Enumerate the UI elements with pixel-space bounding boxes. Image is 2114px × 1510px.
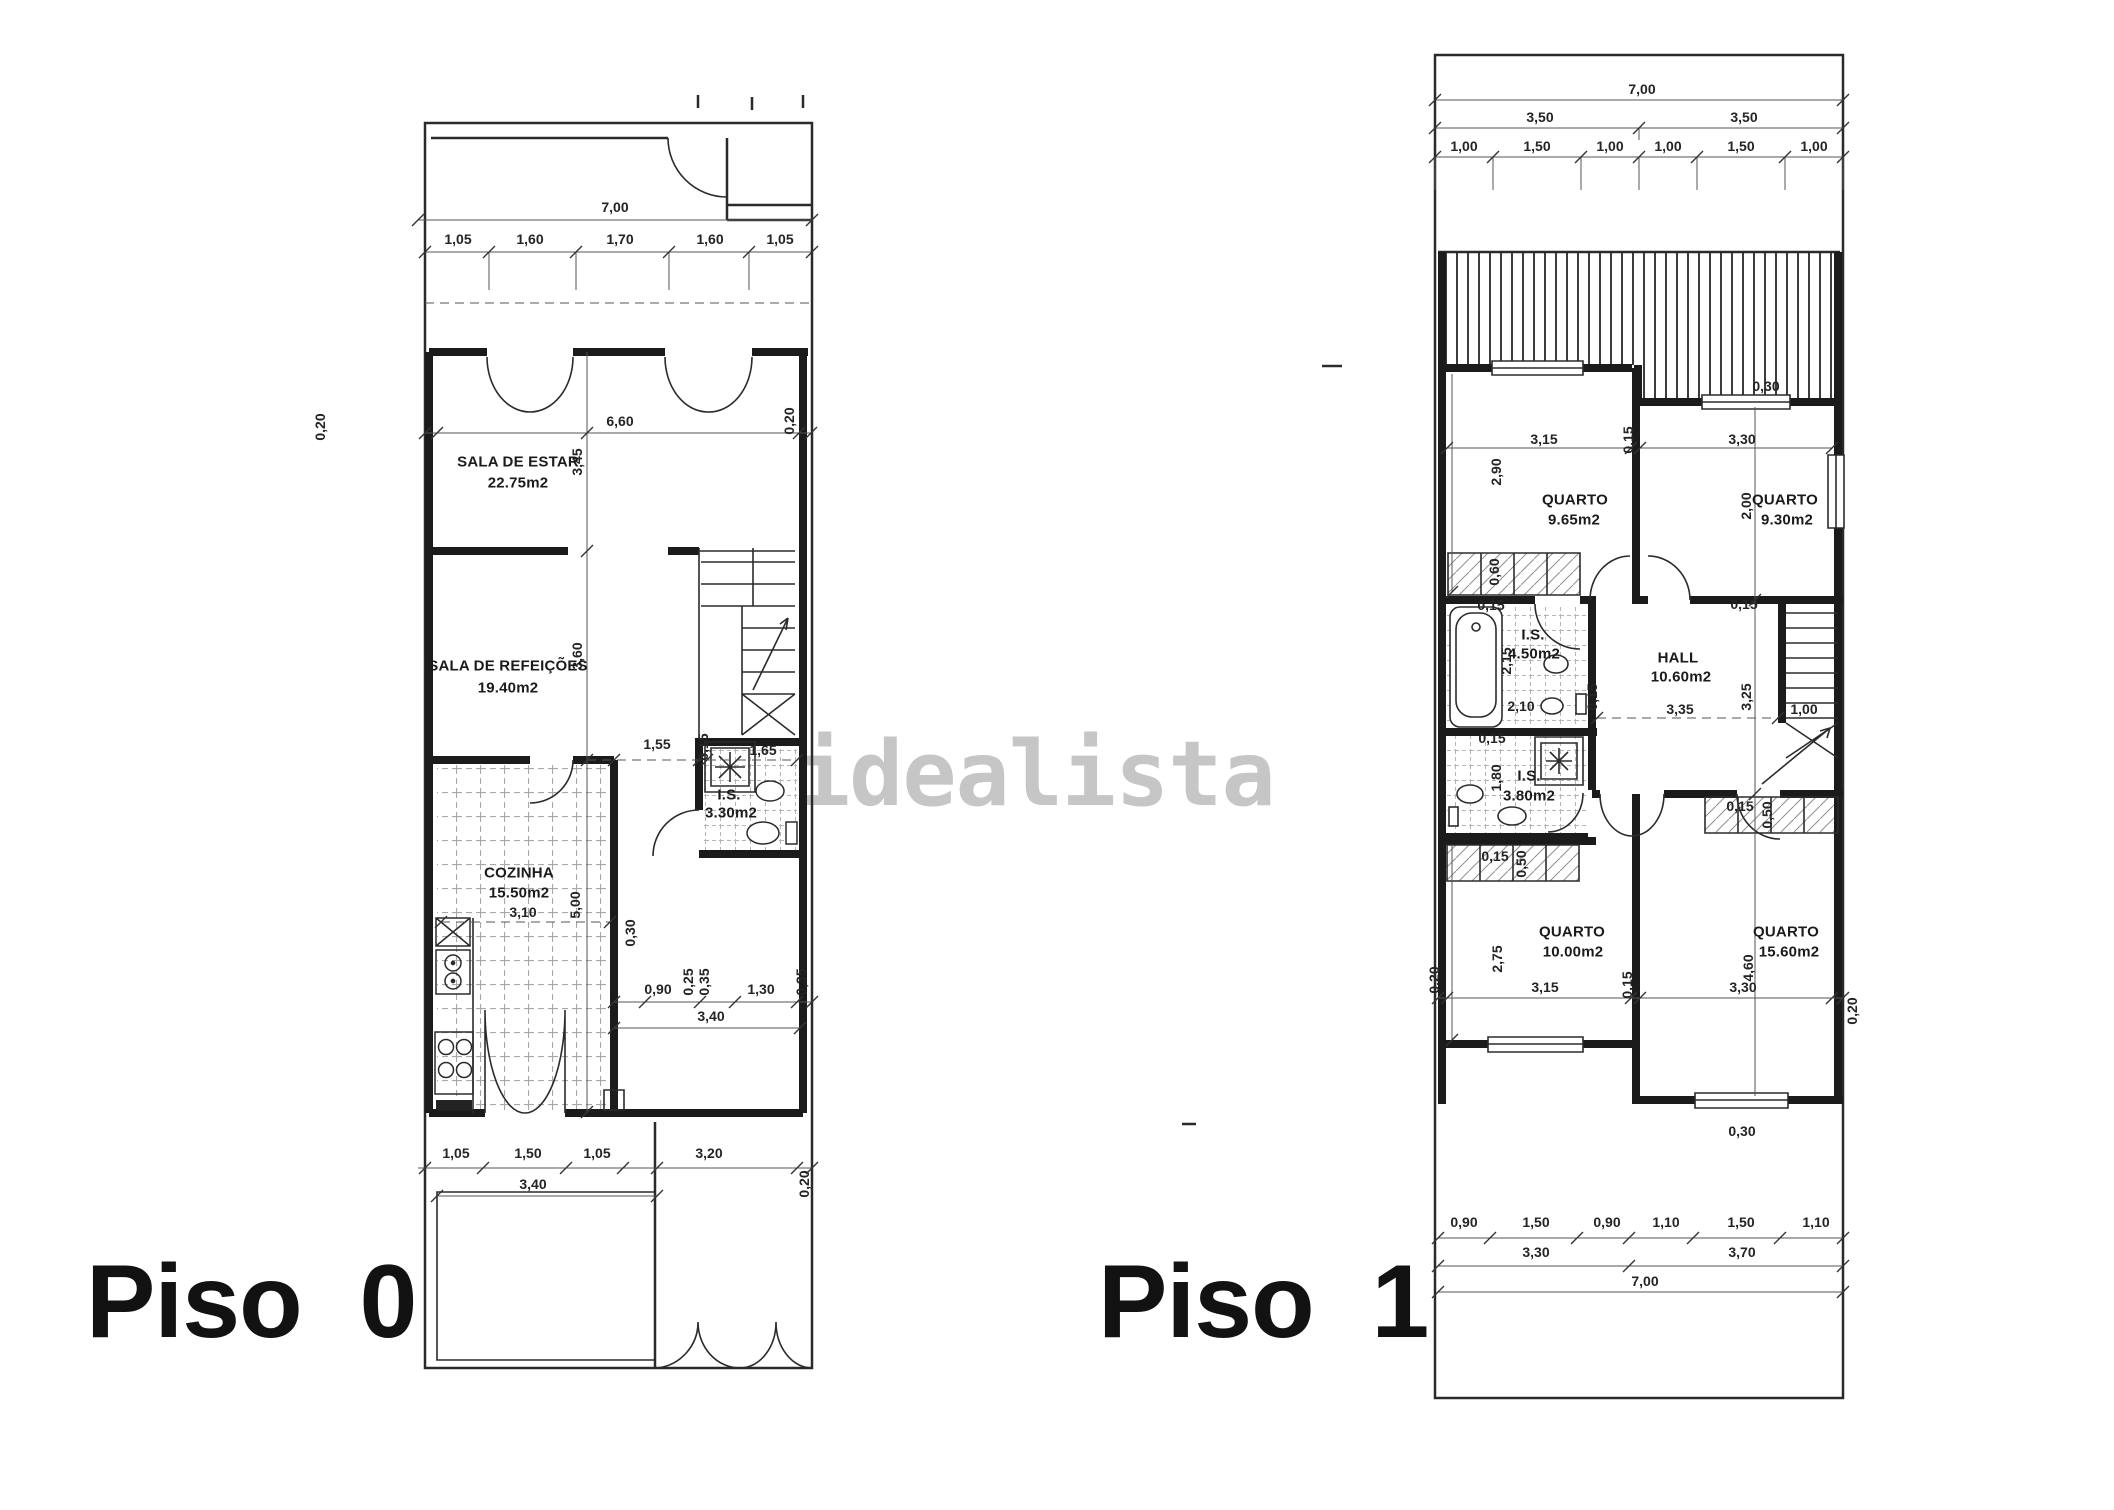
dim-label: 0,90 [1593, 1215, 1620, 1229]
dim-label: 2,75 [1490, 945, 1504, 972]
room-area: 10.00m2 [1543, 945, 1604, 960]
piso1-plan [1182, 55, 1849, 1398]
dim-label: 1,10 [1652, 1215, 1679, 1229]
dim-label: 3,35 [1666, 702, 1693, 716]
dim-label: 5,00 [568, 891, 582, 918]
dim-label: 0,30 [1752, 379, 1779, 393]
dim-label: 0,20 [1845, 997, 1859, 1024]
stairs [1762, 613, 1838, 784]
room-area: 4.50m2 [1508, 647, 1560, 662]
dim-label: 0,60 [1487, 558, 1501, 585]
sink-icon [756, 781, 784, 801]
dim-label: 3,20 [695, 1146, 722, 1160]
room-label: I.S. [717, 788, 740, 803]
dim-label: 3,30 [1729, 980, 1756, 994]
room-area: 3.30m2 [705, 806, 757, 821]
toilet-tank-icon [786, 822, 797, 844]
dim-label: 0,90 [644, 982, 671, 996]
dim-label: 3,30 [1522, 1245, 1549, 1259]
dim-label: 7,00 [1628, 82, 1655, 96]
dim-label: 0,35 [697, 968, 711, 995]
dim-label: 1,30 [747, 982, 774, 996]
dim-label: 1,50 [1727, 1215, 1754, 1229]
room-label: QUARTO [1752, 493, 1818, 508]
dim-label: 3,15 [1531, 980, 1558, 994]
dim-label: 0,20 [1427, 966, 1441, 993]
toilet-tank-icon [1449, 807, 1458, 826]
room-label: COZINHA [484, 866, 554, 881]
dim-label: 0,50 [1514, 850, 1528, 877]
dim-label: 1,70 [606, 232, 633, 246]
room-label: HALL [1658, 651, 1699, 666]
dim-label: 2,00 [1739, 492, 1753, 519]
dim-label: 0,15 [1481, 849, 1508, 863]
dim-label: 2,10 [1507, 699, 1534, 713]
dim-label: 1,55 [643, 737, 670, 751]
dim-label: 1,50 [1727, 139, 1754, 153]
toilet-icon [1541, 698, 1563, 714]
dim-label: 6,60 [606, 414, 633, 428]
dim-label: 3,10 [509, 905, 536, 919]
stairs [699, 548, 795, 738]
dim-label: 0,15 [696, 733, 710, 760]
dim-label: 1,60 [696, 232, 723, 246]
kitchen-tile-floor [437, 765, 609, 1112]
room-area: 15.50m2 [489, 886, 550, 901]
room-label: I.S. [1521, 628, 1544, 643]
dim-label: 1,00 [1450, 139, 1477, 153]
sink-icon [1457, 785, 1483, 803]
dim-label: 3,40 [697, 1009, 724, 1023]
toilet-icon [747, 822, 779, 844]
dim-label: 4,60 [1741, 954, 1755, 981]
dim-label: 0,15 [1726, 799, 1753, 813]
floor-title-piso1: Piso 1 [1098, 1250, 1428, 1354]
dim-label: 1,05 [766, 232, 793, 246]
dim-label: 0,15 [1621, 426, 1635, 453]
dim-label: 1,60 [516, 232, 543, 246]
room-area: 9.30m2 [1761, 513, 1813, 528]
dim-label: 0,90 [1450, 1215, 1477, 1229]
dim-label: 3,70 [1728, 1245, 1755, 1259]
dim-label: 1,00 [1790, 702, 1817, 716]
room-area: 9.65m2 [1548, 513, 1600, 528]
dim-label: 0,20 [797, 1170, 811, 1197]
floor-title-piso0: Piso 0 [86, 1250, 416, 1354]
floorplan-sheet: idealista [0, 0, 2114, 1510]
dim-label: 2,90 [1489, 458, 1503, 485]
dim-label: 0,15 [1620, 971, 1634, 998]
dim-label: 1,50 [1522, 1215, 1549, 1229]
dim-label: 0,15 [1477, 598, 1504, 612]
terrace-deck [1640, 253, 1840, 399]
dim-label: 1,05 [442, 1146, 469, 1160]
room-label: QUARTO [1753, 925, 1819, 940]
piso0-plan [412, 95, 818, 1368]
dim-label: 1,05 [583, 1146, 610, 1160]
room-area: 15.60m2 [1759, 945, 1820, 960]
room-label: QUARTO [1542, 493, 1608, 508]
room-area: 10.60m2 [1651, 670, 1712, 685]
dim-label: 0,20 [782, 407, 796, 434]
bathtub-drain [1472, 623, 1480, 631]
dim-label: 0,25 [681, 968, 695, 995]
dim-label: 3,50 [1526, 110, 1553, 124]
terrace-deck [1438, 253, 1636, 365]
dim-label: 0,15 [1478, 731, 1505, 745]
outer-walls [425, 95, 812, 1368]
dim-label: 0,30 [623, 919, 637, 946]
room-area: 3.80m2 [1503, 789, 1555, 804]
dim-label: 0,15 [1730, 597, 1757, 611]
dim-label: 1,05 [444, 232, 471, 246]
room-label: SALA DE REFEIÇÕES [428, 659, 588, 674]
room-label: QUARTO [1539, 925, 1605, 940]
dim-label: 7,00 [1631, 1274, 1658, 1288]
dim-label: 3,50 [1730, 110, 1757, 124]
dim-label: 3,40 [519, 1177, 546, 1191]
dim-label: 3,25 [1739, 683, 1753, 710]
dim-label: 1,00 [1654, 139, 1681, 153]
dim-label: 1,50 [1523, 139, 1550, 153]
dim-label: 1,00 [1800, 139, 1827, 153]
dim-label: 1,10 [1802, 1215, 1829, 1229]
dim-label: 3,30 [1728, 432, 1755, 446]
dim-label: 0,50 [1760, 801, 1774, 828]
room-area: 19.40m2 [478, 681, 539, 696]
room-label: I.S. [1517, 769, 1540, 784]
dim-label: 0,20 [313, 413, 327, 440]
toilet-icon [1498, 807, 1526, 825]
dim-label: 1,80 [1489, 764, 1503, 791]
dim-label: 1,00 [1596, 139, 1623, 153]
room-area: 22.75m2 [488, 476, 549, 491]
dim-label: 1,50 [514, 1146, 541, 1160]
dim-label: 0,35 [794, 968, 808, 995]
dim-label: 0,15 [1585, 683, 1599, 710]
dim-label: 7,00 [601, 200, 628, 214]
room-label: SALA DE ESTAR [457, 455, 579, 470]
dim-label: 1,65 [749, 743, 776, 757]
dim-label: 3,15 [1530, 432, 1557, 446]
dim-label: 0,30 [1728, 1124, 1755, 1138]
